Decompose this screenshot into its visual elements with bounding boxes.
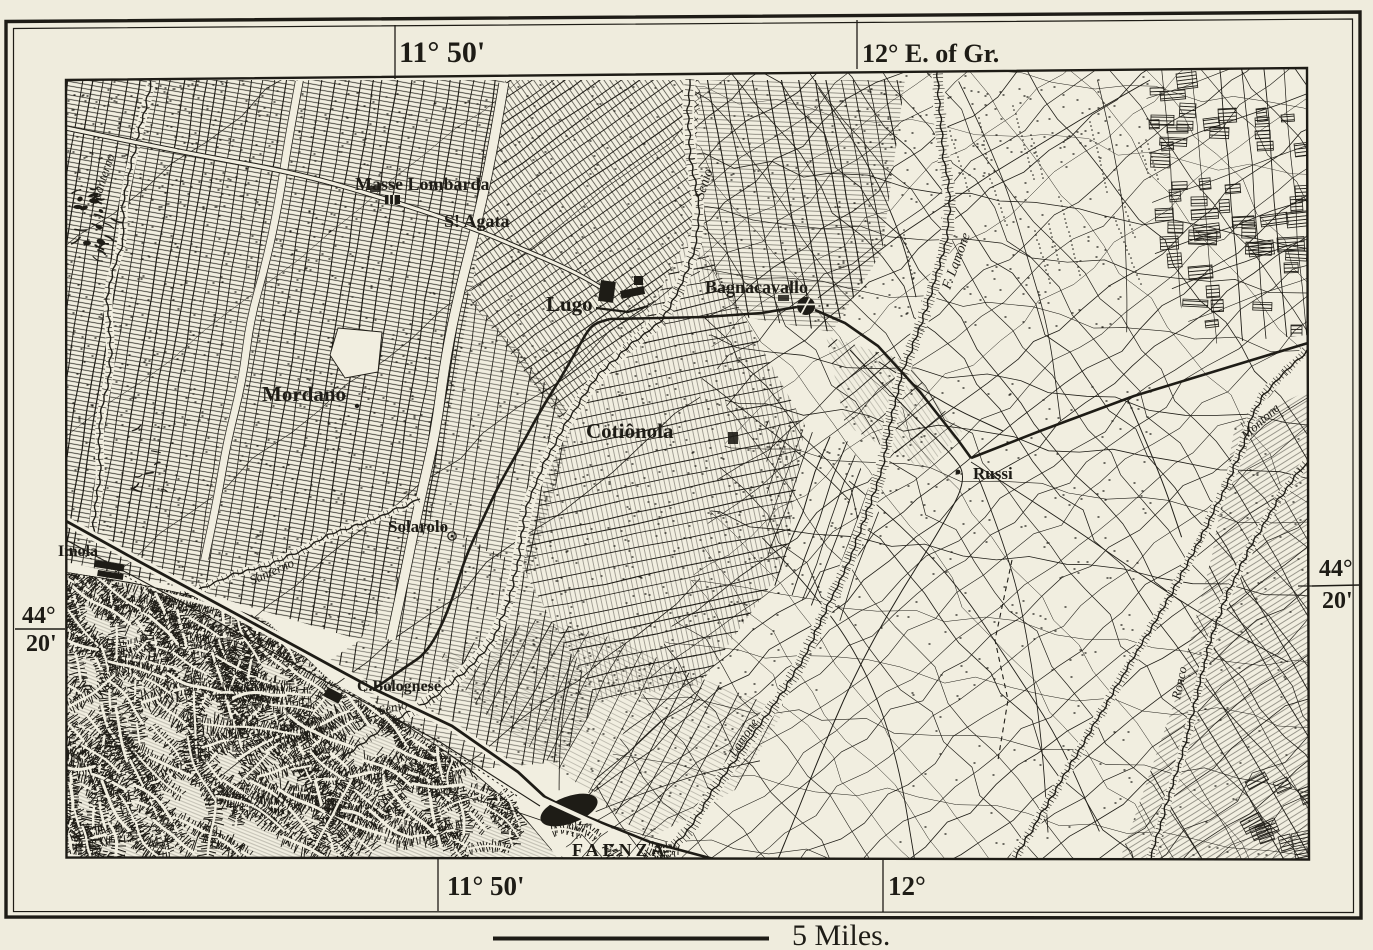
svg-text:C.Bolognese: C.Bolognese (357, 678, 441, 695)
svg-text:Imola: Imola (58, 543, 98, 560)
svg-text:Lugo: Lugo (546, 292, 593, 316)
svg-text:5 Miles.: 5 Miles. (792, 919, 890, 950)
svg-text:11° 50': 11° 50' (447, 871, 525, 901)
svg-text:Masse Lombarda: Masse Lombarda (355, 174, 490, 194)
svg-text:Mordano: Mordano (262, 382, 346, 406)
svg-text:44°: 44° (1319, 556, 1353, 582)
svg-text:44°: 44° (22, 603, 56, 629)
svg-text:Solarolo: Solarolo (388, 517, 448, 536)
svg-text:Russi: Russi (973, 464, 1013, 483)
svg-text:S! Agata: S! Agata (444, 211, 510, 231)
svg-text:12° E. of Gr.: 12° E. of Gr. (862, 39, 999, 68)
svg-text:11° 50': 11° 50' (399, 36, 485, 69)
svg-text:Cotiônola: Cotiônola (586, 419, 674, 443)
svg-text:20': 20' (26, 631, 57, 657)
svg-text:12°: 12° (888, 871, 926, 901)
svg-text:20': 20' (1322, 588, 1353, 614)
svg-text:FAENZA: FAENZA (572, 840, 669, 860)
svg-text:Bagnacavallo: Bagnacavallo (705, 277, 808, 297)
